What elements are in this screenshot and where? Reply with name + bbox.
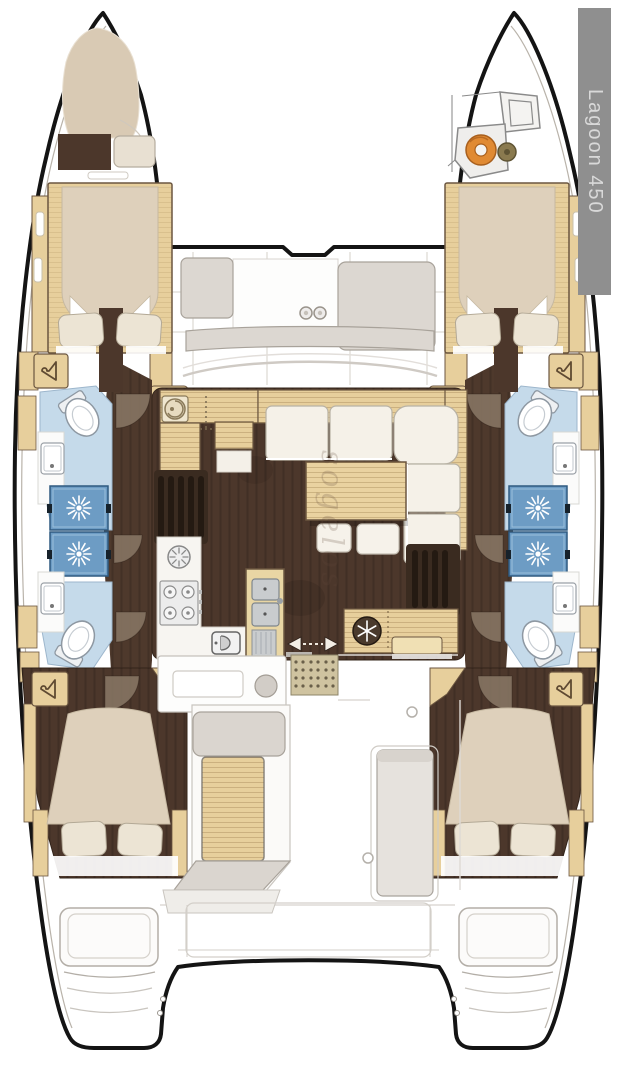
- pillow: [61, 821, 107, 857]
- forward-cockpit-seat: [181, 258, 435, 351]
- hull-window: [36, 212, 44, 236]
- port-forward-bathroom: [38, 386, 112, 530]
- stove-burners-icon: [160, 581, 202, 625]
- bathroom-sink: [41, 583, 64, 614]
- shower: [47, 532, 111, 576]
- bathroom-sink: [553, 583, 576, 614]
- bathroom-sink: [41, 443, 64, 474]
- cockpit-sink: [255, 675, 277, 697]
- helm-seat-module: [371, 746, 438, 901]
- starboard-aft-bathroom: [505, 532, 579, 670]
- fridge-counter: [344, 609, 458, 659]
- starboard-hull-stairs: [406, 544, 460, 616]
- starboard-aft-cabin: [430, 668, 595, 878]
- model-badge: Lagoon 450: [578, 8, 611, 295]
- pillow: [510, 823, 556, 857]
- shower: [47, 486, 111, 530]
- hull-window: [34, 258, 42, 282]
- cockpit-table: [202, 757, 264, 861]
- bow-pillow: [114, 136, 155, 167]
- pillow: [454, 821, 500, 857]
- lagoon-450-floorplan: sogelos Lagoon 450: [0, 0, 617, 1080]
- shower: [506, 532, 570, 576]
- model-badge-label: Lagoon 450: [583, 89, 606, 215]
- pillow: [58, 313, 104, 349]
- wardrobe: [32, 672, 68, 706]
- pillow: [117, 823, 163, 857]
- port-aft-bathroom: [38, 532, 112, 670]
- boat-plan-svg: sogelos: [0, 0, 617, 1080]
- port-hull-stairs: [154, 470, 208, 544]
- pillow: [513, 313, 559, 349]
- wardrobe: [549, 354, 583, 388]
- bathroom-sink: [553, 443, 576, 474]
- wardrobe: [549, 672, 583, 706]
- bed-mattress: [47, 708, 170, 824]
- double-sink-icon: [246, 569, 284, 659]
- starboard-forward-bathroom: [505, 386, 579, 530]
- cockpit-wet-bar: [158, 656, 286, 712]
- entry-mat: [286, 652, 338, 695]
- pillow: [116, 313, 162, 349]
- oven-icon: [212, 632, 240, 654]
- bed-mattress: [446, 708, 569, 824]
- round-sink-icon: [165, 399, 185, 419]
- watermark: sogelos: [314, 450, 349, 591]
- shower: [506, 486, 570, 530]
- salon: [152, 388, 467, 660]
- pillow: [455, 313, 501, 349]
- wardrobe: [34, 354, 68, 388]
